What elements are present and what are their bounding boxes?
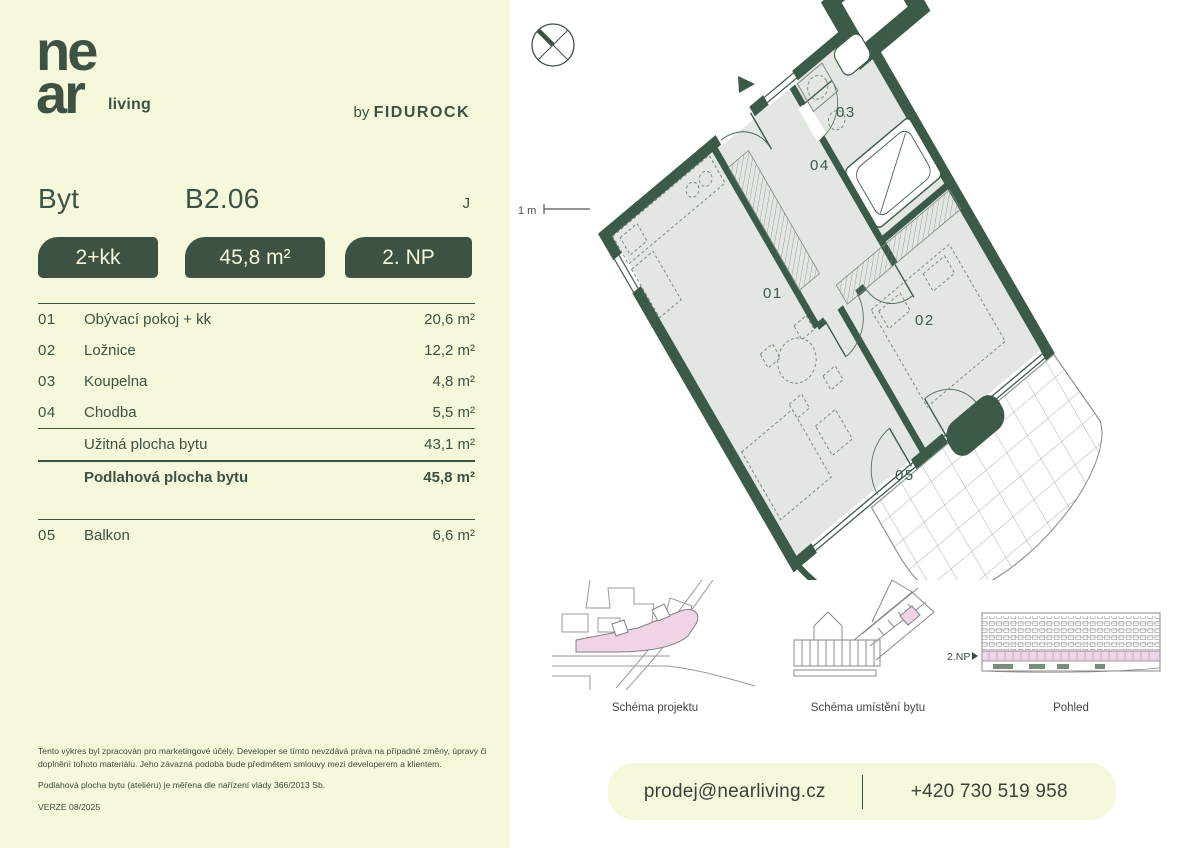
table-row-floor-area: Podlahová plocha bytu 45,8 m² bbox=[38, 460, 475, 493]
total-area: 45,8 m² bbox=[423, 469, 475, 486]
info-panel: ne ar living by FIDUROCK Byt B2.06 J 2+k… bbox=[0, 0, 510, 848]
room-label-02: 02 bbox=[915, 312, 935, 329]
flat-card-page: ne ar living by FIDUROCK Byt B2.06 J 2+k… bbox=[0, 0, 1200, 848]
nearliving-logo: ne ar living bbox=[36, 30, 156, 115]
schematic-caption: Schéma projektu bbox=[550, 702, 760, 714]
table-row-balcony: 05 Balkon 6,6 m² bbox=[38, 519, 475, 551]
disclaimer-paragraph: Podlahová plocha bytu (ateliéru) je měře… bbox=[38, 779, 496, 792]
byline: by FIDUROCK bbox=[354, 104, 470, 122]
project-footprint-highlight bbox=[576, 610, 698, 652]
room-name: Koupelna bbox=[84, 373, 432, 390]
table-row: 03 Koupelna 4,8 m² bbox=[38, 366, 475, 397]
floor-badge: 2. NP bbox=[345, 237, 472, 278]
schematic-caption: Pohled bbox=[945, 702, 1167, 714]
room-number: 01 bbox=[38, 311, 84, 328]
contact-email[interactable]: prodej@nearliving.cz bbox=[608, 781, 862, 803]
legal-disclaimer: Tento výkres byl zpracován pro marketing… bbox=[38, 745, 496, 814]
total-name: Podlahová plocha bytu bbox=[84, 469, 423, 486]
room-name: Obývací pokoj + kk bbox=[84, 311, 424, 328]
floor-plan: 1 m bbox=[510, 0, 1200, 580]
room-area: 12,2 m² bbox=[424, 342, 475, 359]
logo-text-living: living bbox=[108, 96, 151, 114]
table-row: 01 Obývací pokoj + kk 20,6 m² bbox=[38, 303, 475, 335]
unit-header: Byt B2.06 J bbox=[38, 183, 470, 215]
version-label: VERZE 08/2025 bbox=[38, 801, 496, 814]
elevation-floor-highlight bbox=[982, 651, 1160, 661]
room-area-table: 01 Obývací pokoj + kk 20,6 m² 02 Ložnice… bbox=[38, 303, 475, 551]
room-name: Balkon bbox=[84, 527, 432, 544]
schematic-unit-location: Schéma umístění bytu bbox=[788, 578, 948, 714]
schematic-caption: Schéma umístění bytu bbox=[788, 702, 948, 714]
unit-location-map bbox=[788, 578, 948, 690]
table-row: 02 Ložnice 12,2 m² bbox=[38, 335, 475, 366]
room-area: 20,6 m² bbox=[424, 311, 475, 328]
scale-label: 1 m bbox=[518, 205, 536, 217]
room-label-03: 03 bbox=[836, 104, 856, 121]
elevation-drawing: 2.NP bbox=[945, 578, 1167, 690]
room-number: 03 bbox=[38, 373, 84, 390]
contact-phone[interactable]: +420 730 519 958 bbox=[863, 781, 1117, 803]
schematic-project: Schéma projektu bbox=[550, 578, 760, 714]
area-badge: 45,8 m² bbox=[185, 237, 325, 278]
elevation-floor-label: 2.NP bbox=[947, 651, 970, 663]
room-area: 5,5 m² bbox=[432, 404, 475, 421]
room-number: 02 bbox=[38, 342, 84, 359]
room-number: 05 bbox=[38, 527, 84, 544]
room-area: 4,8 m² bbox=[432, 373, 475, 390]
scale-bar: 1 m bbox=[518, 204, 590, 217]
schematic-elevation: 2.NP Pohled bbox=[945, 578, 1167, 714]
unit-id: B2.06 bbox=[185, 183, 463, 215]
building-letter: J bbox=[463, 195, 471, 212]
floor-pointer-icon bbox=[972, 652, 978, 660]
room-name: Chodba bbox=[84, 404, 432, 421]
total-area: 43,1 m² bbox=[424, 436, 475, 453]
room-name: Ložnice bbox=[84, 342, 424, 359]
byline-prefix: by bbox=[354, 104, 370, 121]
compass-icon bbox=[532, 24, 574, 66]
total-name: Užitná plocha bytu bbox=[84, 436, 424, 453]
contact-bar: prodej@nearliving.cz +420 730 519 958 bbox=[608, 763, 1116, 820]
entrance-marker-icon bbox=[738, 76, 755, 93]
room-number: 04 bbox=[38, 404, 84, 421]
project-site-map bbox=[550, 578, 760, 690]
room-area: 6,6 m² bbox=[432, 527, 475, 544]
room-label-04: 04 bbox=[810, 157, 830, 174]
disclaimer-paragraph: Tento výkres byl zpracován pro marketing… bbox=[38, 745, 496, 771]
byline-brand: FIDUROCK bbox=[374, 104, 470, 121]
unit-badges: 2+kk 45,8 m² 2. NP bbox=[38, 237, 472, 278]
table-row: 04 Chodba 5,5 m² bbox=[38, 397, 475, 428]
layout-badge: 2+kk bbox=[38, 237, 158, 278]
room-label-01: 01 bbox=[763, 285, 783, 302]
unit-type-label: Byt bbox=[38, 183, 185, 215]
room-label-05: 05 bbox=[895, 467, 915, 484]
apartment-outline bbox=[580, 0, 1174, 580]
table-row-usable-area: Užitná plocha bytu 43,1 m² bbox=[38, 428, 475, 460]
